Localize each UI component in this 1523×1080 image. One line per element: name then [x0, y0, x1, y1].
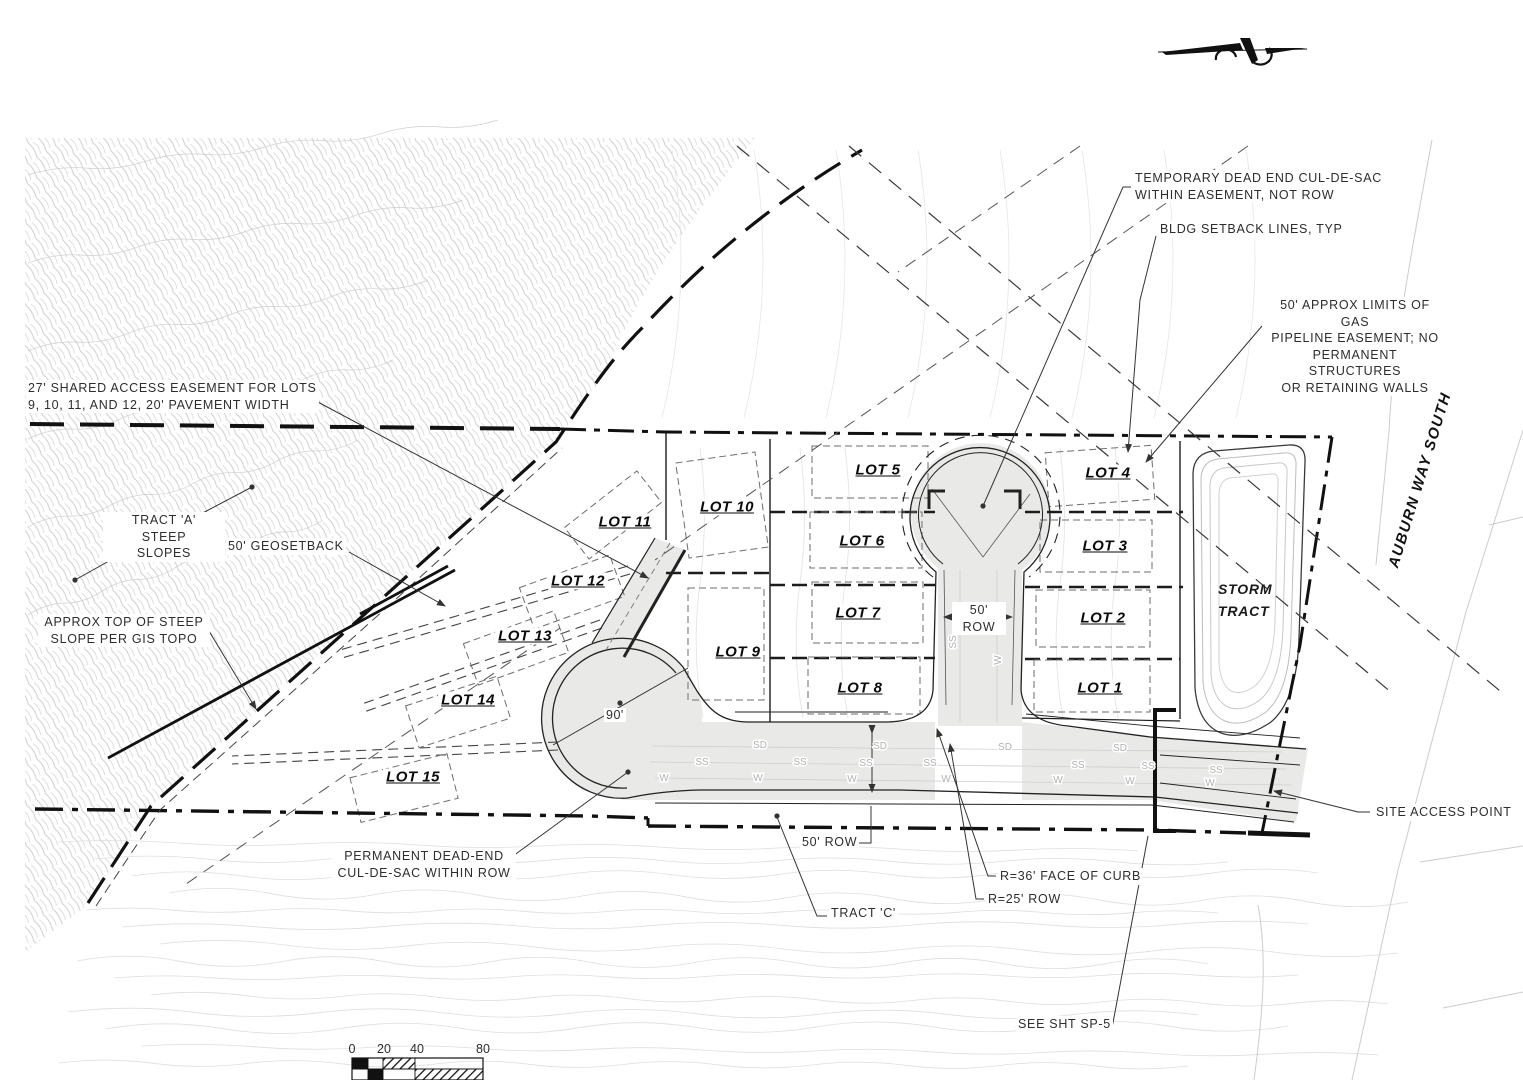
svg-text:SS: SS	[948, 635, 959, 649]
svg-text:SS: SS	[1141, 761, 1155, 772]
svg-text:W: W	[993, 655, 1004, 665]
note-tract-a: TRACT 'A' STEEP SLOPES	[103, 512, 225, 562]
svg-text:W: W	[659, 773, 669, 784]
note-approx-top-slope: APPROX TOP OF STEEP SLOPE PER GIS TOPO	[38, 614, 210, 647]
svg-text:SS: SS	[923, 758, 937, 769]
lot-label-15: LOT 15	[383, 769, 443, 786]
note-perm-culdesac: PERMANENT DEAD-END CUL-DE-SAC WITHIN ROW	[332, 848, 516, 881]
note-tract-c: TRACT 'C'	[829, 905, 898, 922]
svg-text:W: W	[1053, 775, 1063, 786]
svg-text:SD: SD	[873, 741, 887, 752]
note-bldg-setback: BLDG SETBACK LINES, TYP	[1158, 221, 1345, 238]
lot-label-3: LOT 3	[1079, 538, 1130, 555]
svg-text:40: 40	[410, 1042, 424, 1056]
svg-text:SS: SS	[793, 757, 807, 768]
note-row50-south: 50' ROW	[800, 834, 859, 851]
lot-label-2: LOT 2	[1077, 610, 1128, 627]
svg-text:SD: SD	[753, 740, 767, 751]
svg-text:SS: SS	[1209, 765, 1223, 776]
lot-label-7: LOT 7	[832, 605, 883, 622]
lot-label-11: LOT 11	[596, 514, 655, 531]
dim-row50-street: 50' ROW	[952, 602, 1006, 635]
svg-text:SD: SD	[998, 742, 1012, 753]
note-see-sheet: SEE SHT SP-5	[1016, 1016, 1113, 1033]
offsite-road-lines	[1254, 140, 1523, 1080]
svg-text:SS: SS	[1071, 760, 1085, 771]
svg-text:W: W	[941, 774, 951, 785]
storm-tract-label: STORM TRACT	[1218, 578, 1272, 623]
note-site-access: SITE ACCESS POINT	[1374, 804, 1514, 821]
svg-text:20: 20	[377, 1042, 391, 1056]
svg-text:SD: SD	[1113, 743, 1127, 754]
lot-label-8: LOT 8	[834, 680, 885, 697]
note-gas-easement: 50' APPROX LIMITS OF GAS PIPELINE EASEME…	[1268, 297, 1442, 396]
svg-text:W: W	[753, 773, 763, 784]
dim-90ft: 90'	[604, 708, 626, 722]
note-geosetback: 50' GEOSETBACK	[226, 538, 346, 555]
svg-text:W: W	[1205, 778, 1215, 789]
note-shared-access: 27' SHARED ACCESS EASEMENT FOR LOTS 9, 1…	[26, 380, 319, 413]
north-arrow-icon	[1158, 38, 1307, 65]
svg-text:0: 0	[349, 1042, 356, 1056]
svg-text:80: 80	[476, 1042, 490, 1056]
svg-text:SS: SS	[695, 757, 709, 768]
note-r25-row: R=25' ROW	[986, 891, 1063, 908]
site-plan-sheet: SD SD SD SD SS SS SS SS SS SS W W W W W …	[0, 0, 1523, 1080]
lot-label-10: LOT 10	[697, 499, 757, 516]
note-temp-culdesac: TEMPORARY DEAD END CUL-DE-SAC WITHIN EAS…	[1133, 170, 1384, 203]
lot-label-5: LOT 5	[852, 462, 903, 479]
lot-label-9: LOT 9	[712, 644, 763, 661]
lot-label-6: LOT 6	[836, 533, 887, 550]
lot-label-12: LOT 12	[548, 573, 608, 590]
svg-text:SS: SS	[859, 758, 873, 769]
note-r36-curb: R=36' FACE OF CURB	[998, 868, 1143, 885]
svg-text:W: W	[847, 774, 857, 785]
svg-text:W: W	[1125, 776, 1135, 787]
lot-label-14: LOT 14	[438, 692, 498, 709]
lot-label-1: LOT 1	[1074, 680, 1125, 697]
lot-label-4: LOT 4	[1082, 465, 1133, 482]
lot-label-13: LOT 13	[495, 628, 555, 645]
